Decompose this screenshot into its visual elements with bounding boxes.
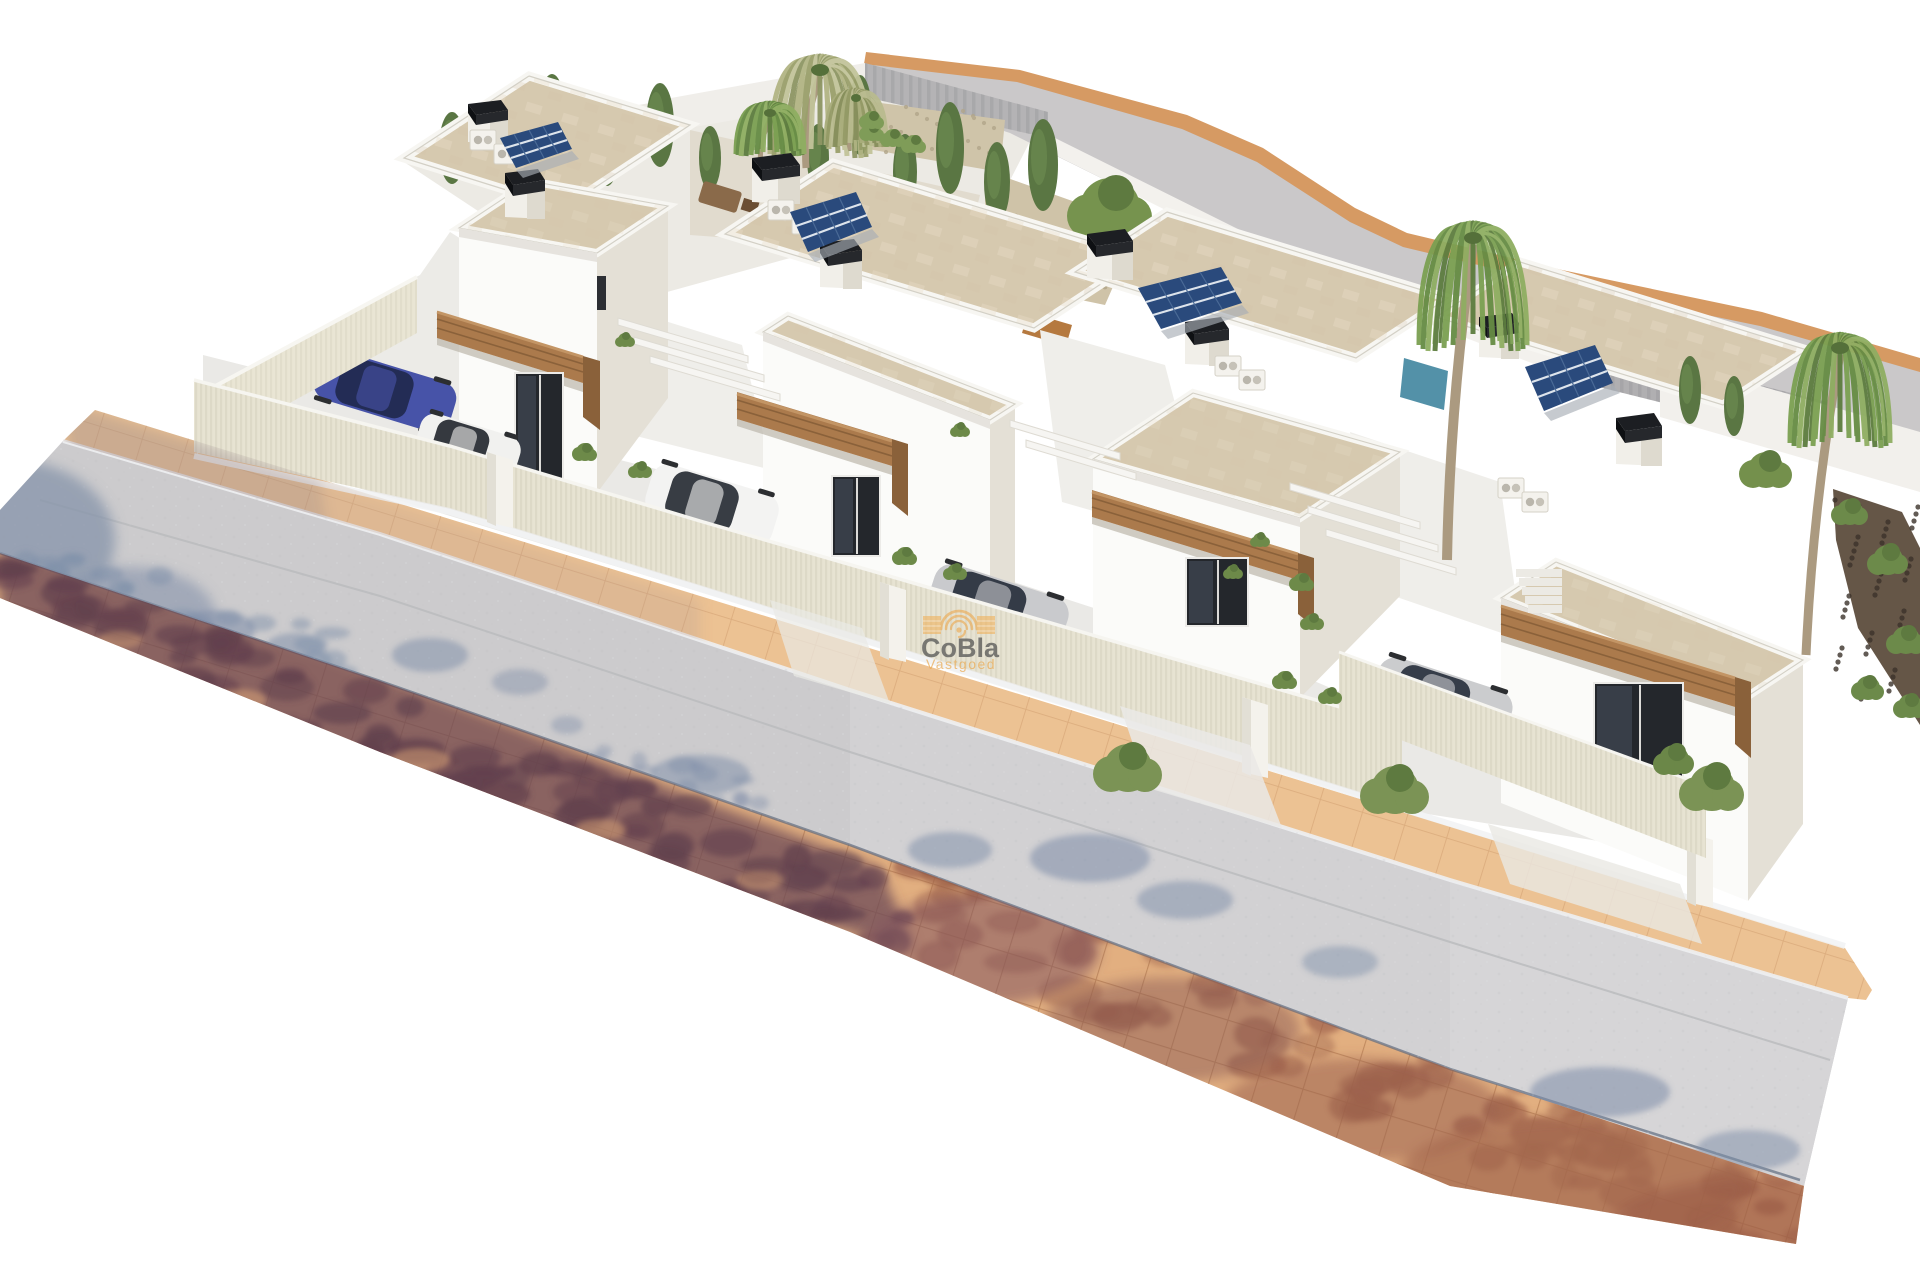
svg-text:Vastgoed: Vastgoed: [926, 656, 996, 672]
